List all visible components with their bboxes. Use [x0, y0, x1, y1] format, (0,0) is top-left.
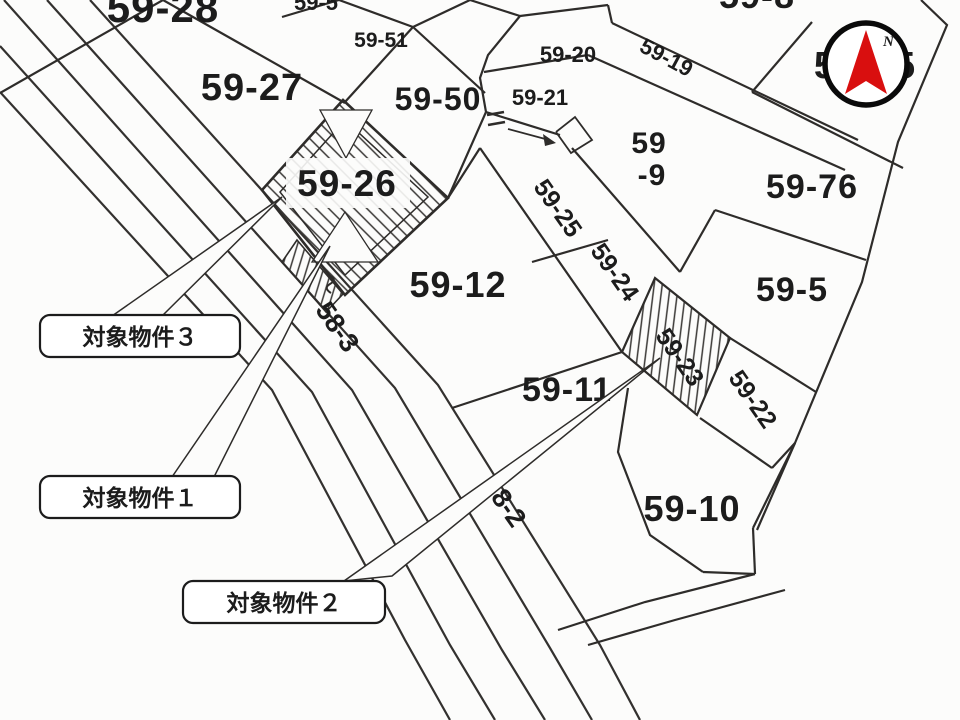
parcel-label-59-12: 59-12: [409, 264, 506, 305]
parcel-label-59-51: 59-51: [354, 29, 408, 52]
callout-label-1: 対象物件１: [83, 485, 198, 511]
parcel-label-59-8-top-partial: 59-8: [719, 0, 795, 16]
parcel-label-59-20: 59-20: [540, 42, 596, 67]
north-label: N: [882, 34, 895, 50]
callout-label-3: 対象物件３: [83, 324, 198, 350]
callout-target-property-2: 対象物件２: [183, 581, 385, 623]
parcel-label-59-50: 59-50: [395, 81, 482, 117]
cadastral-map: 59-28 59-5 59-51 59-27 59-50 59-20 59-19…: [0, 0, 960, 720]
callout-target-property-1: 対象物件１: [40, 476, 240, 518]
parcel-label-59-5-top-partial: 59-5: [294, 0, 338, 15]
parcel-label-59-27: 59-27: [201, 67, 303, 109]
callout-target-property-3: 対象物件３: [40, 315, 240, 357]
parcel-label-59-5: 59-5: [756, 271, 828, 309]
parcel-label-59-9-line1: 59: [631, 127, 666, 160]
parcel-label-59-26: 59-26: [297, 163, 397, 204]
parcel-label-59-21: 59-21: [512, 85, 568, 110]
parcel-label-59-10: 59-10: [643, 488, 740, 529]
parcel-label-59-9-line2: -9: [638, 159, 667, 192]
parcel-label-59-28: 59-28: [107, 0, 219, 31]
callout-label-2: 対象物件２: [227, 590, 342, 616]
cadastral-map-page: 59-28 59-5 59-51 59-27 59-50 59-20 59-19…: [0, 0, 960, 720]
parcel-label-59-76: 59-76: [766, 168, 858, 206]
